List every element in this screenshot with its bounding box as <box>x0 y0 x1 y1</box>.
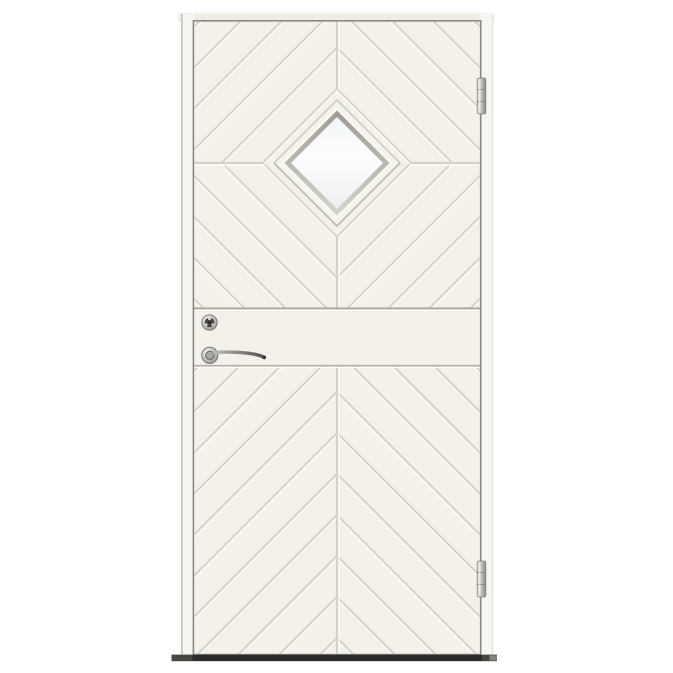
hinge-bottom <box>477 561 486 597</box>
handle-hub <box>206 351 214 359</box>
frame-jamb-right-edge <box>492 14 494 656</box>
cylinder-screw <box>211 323 214 326</box>
lock-cylinder <box>202 315 217 330</box>
hinge-pin-highlight <box>479 79 481 113</box>
hinge-body <box>477 78 486 114</box>
hinge-top <box>477 78 486 114</box>
threshold-core <box>193 655 483 661</box>
frame-head-highlight <box>178 12 494 14</box>
door-product-image <box>0 0 673 673</box>
frame-jamb-left-edge <box>181 14 183 656</box>
frame-jamb-left <box>181 14 194 656</box>
threshold <box>172 655 498 662</box>
product-photo-canvas <box>0 0 673 673</box>
keyway <box>208 321 210 323</box>
cylinder-screw <box>208 317 211 320</box>
threshold-end-cap <box>490 655 498 660</box>
handle-lever-tip <box>262 356 266 360</box>
panel-pattern-bottom-center <box>337 366 339 654</box>
cylinder-screw <box>205 323 208 326</box>
